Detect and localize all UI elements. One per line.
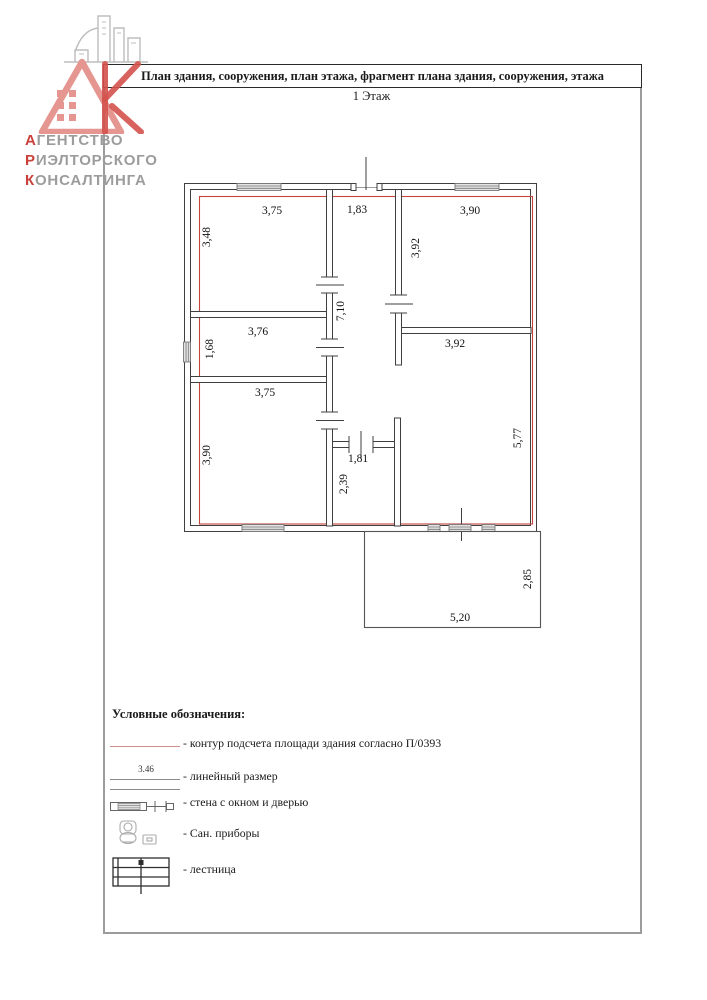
- document-page: АГЕНТСТВО РИЭЛТОРСКОГО КОНСАЛТИНГА План …: [0, 0, 707, 1000]
- dimension-label: 5,20: [450, 612, 470, 624]
- dimension-label: 5,77: [512, 428, 524, 448]
- dimension-label: 2,39: [338, 474, 350, 494]
- legend-wall-window-door-icon: [110, 800, 176, 814]
- dimension-label: 1,68: [204, 339, 216, 359]
- dimension-label: 3,75: [262, 205, 282, 217]
- dimension-label: 1,81: [348, 453, 368, 465]
- agency-line: РИЭЛТОРСКОГО: [25, 151, 158, 171]
- legend-size-line-icon: [110, 789, 180, 790]
- dimension-label: 7,10: [335, 301, 347, 321]
- dimension-label: 3,92: [445, 338, 465, 350]
- legend-contour-line-icon: [110, 746, 180, 747]
- legend-stairs-icon: [110, 855, 174, 897]
- dimension-label: 3,90: [201, 445, 213, 465]
- agency-logo-icon: [18, 6, 183, 134]
- area-contour: [200, 197, 533, 525]
- dimension-label: 3,90: [460, 205, 480, 217]
- dimension-label: 3,92: [410, 238, 422, 258]
- legend-sanitary-icon: [116, 820, 166, 852]
- entrance-door: [351, 157, 382, 191]
- dimension-label: 3,48: [201, 227, 213, 247]
- page-title: План здания, сооружения, план этажа, фра…: [103, 64, 642, 88]
- floor-label: 1 Этаж: [103, 89, 640, 104]
- interior-walls: [191, 190, 532, 527]
- dimension-label: 2,85: [522, 569, 534, 589]
- outer-wall: [185, 184, 537, 532]
- legend-item-label: - линейный размер: [183, 769, 278, 784]
- legend-item-label: - Сан. приборы: [183, 826, 259, 841]
- legend-item-label: - лестница: [183, 862, 236, 877]
- ark-monogram-icon: [42, 62, 141, 132]
- outer-wall-inner: [191, 190, 531, 526]
- dimension-label: 1,83: [347, 204, 367, 216]
- skyline-icon: [64, 16, 148, 62]
- agency-line: КОНСАЛТИНГА: [25, 171, 158, 191]
- legend-item-label: - контур подсчета площади здания согласн…: [183, 736, 441, 751]
- legend-heading: Условные обозначения:: [112, 707, 245, 722]
- dimension-label: 3,76: [248, 326, 268, 338]
- agency-name: АГЕНТСТВО РИЭЛТОРСКОГО КОНСАЛТИНГА: [25, 131, 158, 191]
- legend-sample-number: 3.46: [122, 764, 170, 774]
- dimension-label: 3,75: [255, 387, 275, 399]
- legend-size-line-icon: [110, 779, 180, 780]
- legend-item-label: - стена с окном и дверью: [183, 795, 308, 810]
- agency-line: АГЕНТСТВО: [25, 131, 158, 151]
